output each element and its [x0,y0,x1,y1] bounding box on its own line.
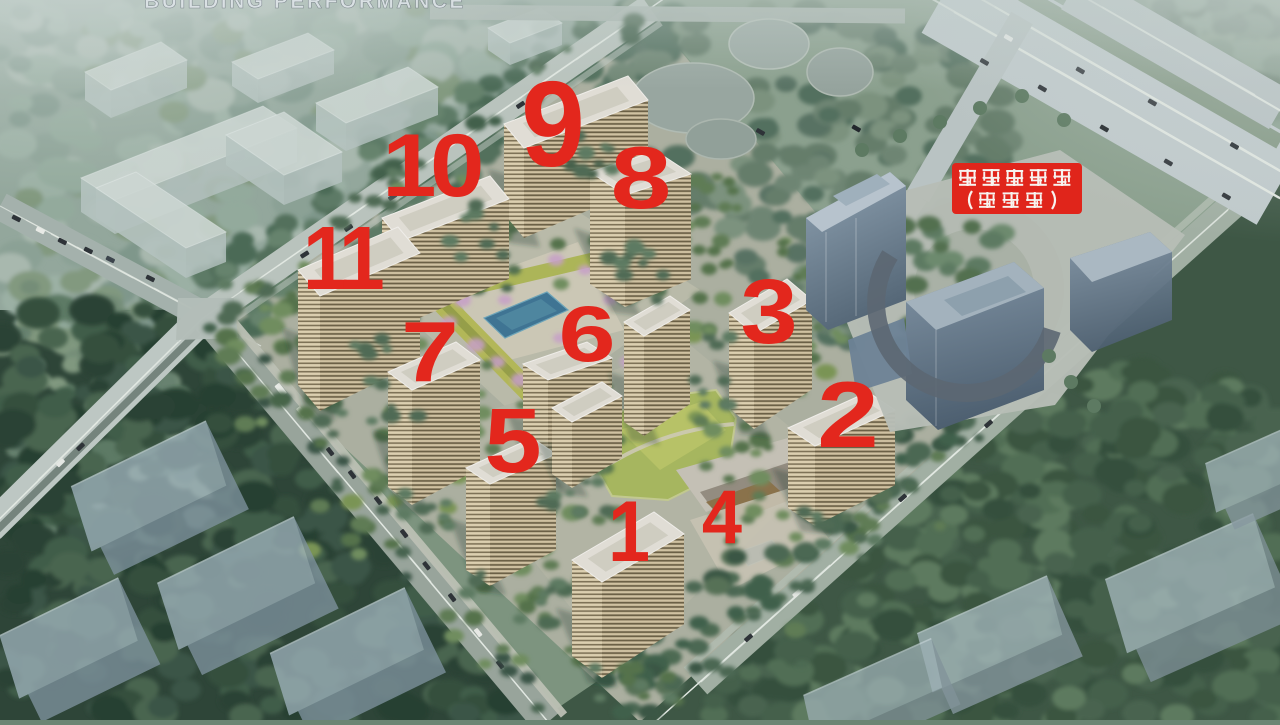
svg-text:8: 8 [611,129,672,228]
svg-text:7: 7 [401,305,459,400]
svg-text:4: 4 [702,474,742,559]
svg-text:2: 2 [817,362,879,467]
svg-text:BUILDING PERFORMANCE: BUILDING PERFORMANCE [144,0,466,13]
svg-text:9: 9 [521,57,585,193]
svg-text:11: 11 [303,209,383,309]
svg-text:10: 10 [382,115,481,215]
svg-text:1: 1 [608,485,650,581]
svg-text:5: 5 [484,389,541,492]
svg-text:6: 6 [558,290,615,378]
svg-text:3: 3 [740,260,797,363]
